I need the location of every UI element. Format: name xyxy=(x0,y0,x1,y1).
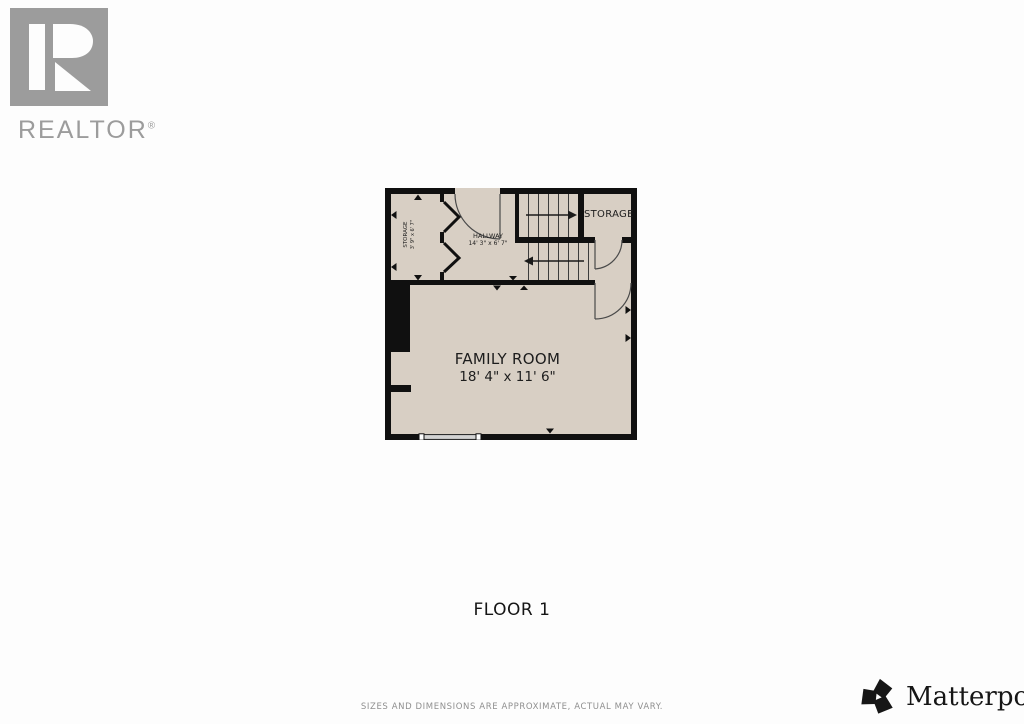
floorplan-drawing: STORAGE 3' 9" x 6' 7" HALLWAY 14' 3" x 6… xyxy=(385,188,637,440)
realtor-registered-mark: ® xyxy=(148,121,155,132)
landing-door-arc xyxy=(595,240,622,269)
family-room-dims: 18' 4" x 11' 6" xyxy=(415,369,600,386)
matterport-wordmark: Matterport® xyxy=(906,682,1024,712)
hallway-label: HALLWAY 14' 3" x 6' 7" xyxy=(448,232,528,248)
storage-small-label: STORAGE 3' 9" x 6' 7" xyxy=(385,206,435,264)
storage-right-name: STORAGE xyxy=(584,209,630,222)
realtor-word-text: REALTOR xyxy=(18,116,148,144)
matterport-word-text: Matterport xyxy=(906,682,1024,712)
storage-small-dims: 3' 9" x 6' 7" xyxy=(410,220,416,249)
floorplan-page: REALTOR® xyxy=(0,0,1024,724)
realtor-r-icon xyxy=(10,8,108,106)
hallway-name: HALLWAY xyxy=(448,232,528,240)
realtor-logo: REALTOR® xyxy=(10,8,108,110)
matterport-logo: Matterport® xyxy=(858,676,1024,718)
window-icon xyxy=(419,434,481,440)
stairs-down-arrow-head xyxy=(524,257,533,266)
realtor-wordmark: REALTOR® xyxy=(18,116,155,145)
stairs-up-arrow-head xyxy=(568,211,577,220)
family-room-name: FAMILY ROOM xyxy=(415,350,600,369)
matterport-pinwheel-icon xyxy=(858,676,898,718)
hallway-dims: 14' 3" x 6' 7" xyxy=(448,240,528,248)
floor-number-label: FLOOR 1 xyxy=(0,600,1024,620)
family-room-label: FAMILY ROOM 18' 4" x 11' 6" xyxy=(415,350,600,386)
storage-right-label: STORAGE xyxy=(584,209,630,222)
